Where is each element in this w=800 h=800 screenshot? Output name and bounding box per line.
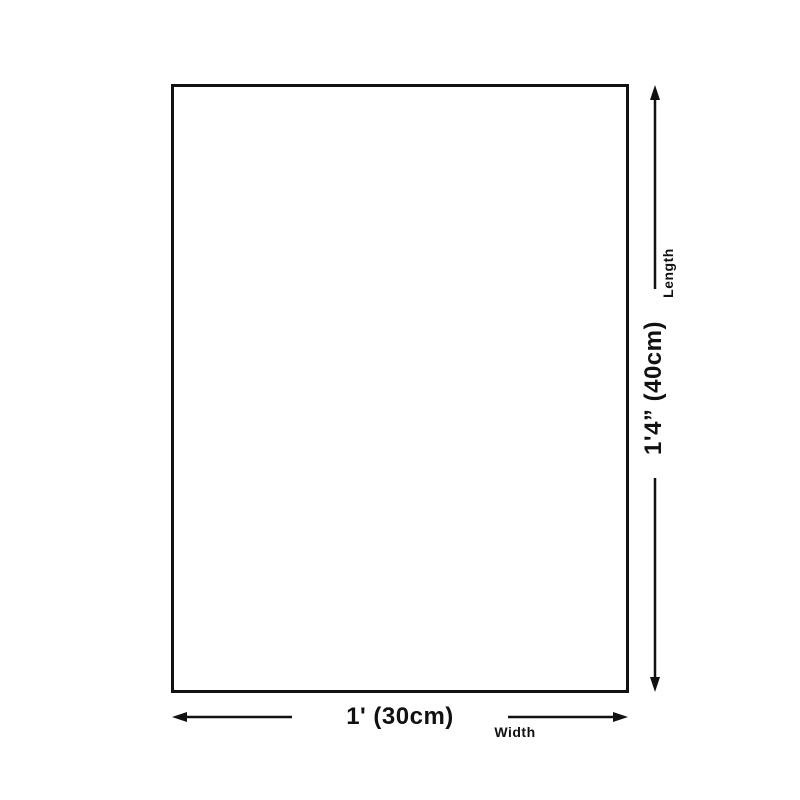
width-axis-label: Width xyxy=(494,724,535,740)
width-value-label: 1' (30cm) xyxy=(346,703,454,731)
arrow-left-icon xyxy=(172,712,187,722)
arrow-up-icon xyxy=(650,85,660,100)
length-axis-label: Length xyxy=(660,248,676,298)
dimension-diagram: 1'4” (40cm) Length 1' (30cm) Width xyxy=(0,0,800,800)
arrow-down-icon xyxy=(650,677,660,692)
length-value-label: 1'4” (40cm) xyxy=(640,321,668,455)
product-outline xyxy=(171,84,629,693)
arrow-right-icon xyxy=(613,712,628,722)
